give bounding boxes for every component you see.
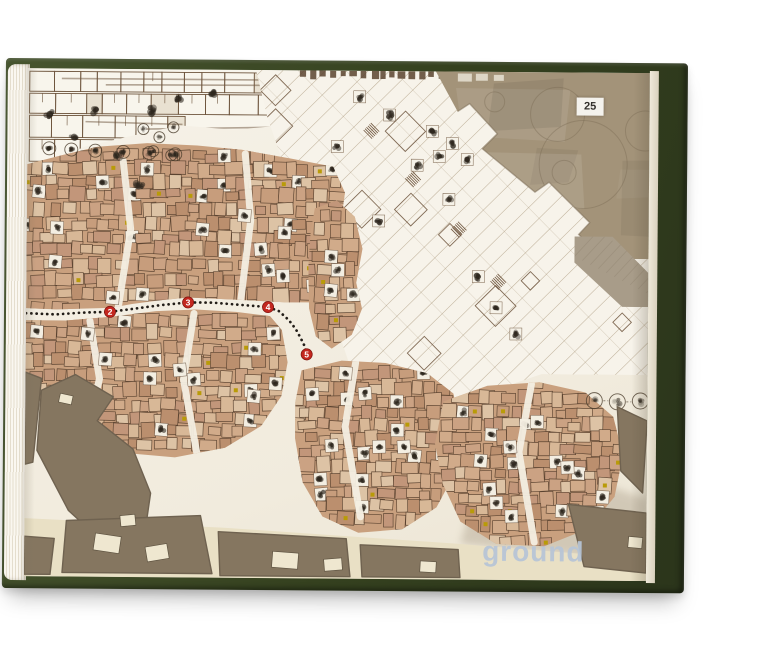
svg-text:4: 4 (266, 302, 271, 312)
photo-backdrop: 2345 25 ground (0, 0, 768, 652)
book: 2345 25 ground (2, 58, 688, 593)
book-page: 2345 25 ground (24, 68, 650, 581)
svg-text:2: 2 (108, 307, 113, 317)
route-marker-4: 4 (262, 301, 273, 312)
page-number-label: 25 (577, 97, 604, 115)
route-marker-3: 3 (182, 297, 193, 308)
svg-text:5: 5 (304, 349, 309, 359)
route-marker-5: 5 (301, 349, 312, 360)
ground-floor-plan: 2345 (24, 68, 650, 581)
floor-label: ground (482, 538, 585, 567)
old-town-fabric-0 (24, 142, 348, 319)
route-marker-2: 2 (104, 306, 115, 317)
svg-text:3: 3 (186, 297, 191, 307)
